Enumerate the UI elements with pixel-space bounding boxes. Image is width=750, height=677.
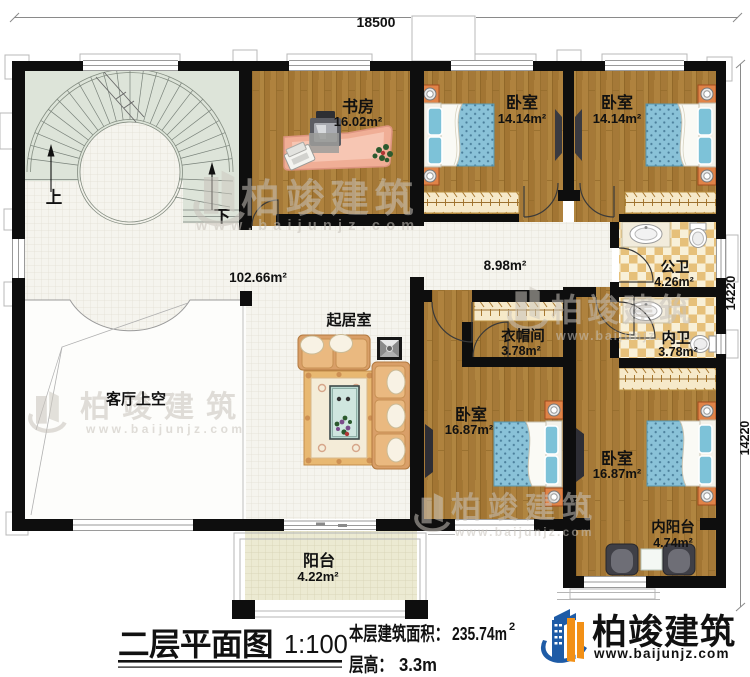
svg-text:客厅上空: 客厅上空 [105, 390, 166, 408]
svg-text:卧室: 卧室 [506, 93, 538, 112]
svg-text:www.baijunjz.com: www.baijunjz.com [195, 218, 420, 234]
svg-text:4.22m²: 4.22m² [297, 569, 339, 584]
svg-text:公卫: 公卫 [661, 259, 690, 276]
svg-text:16.87m²: 16.87m² [593, 466, 642, 481]
svg-text:卧室: 卧室 [601, 93, 633, 112]
svg-text:102.66m²: 102.66m² [229, 270, 287, 285]
svg-text:层高：: 层高： [349, 653, 393, 676]
svg-text:18500: 18500 [357, 14, 396, 30]
svg-text:2: 2 [509, 621, 515, 633]
svg-text:3.78m²: 3.78m² [658, 345, 698, 359]
svg-text:16.02m²: 16.02m² [334, 114, 383, 129]
svg-text:柏竣建筑: 柏竣建筑 [551, 292, 695, 328]
svg-text:柏竣建筑: 柏竣建筑 [451, 491, 599, 525]
svg-text:起居室: 起居室 [325, 311, 371, 329]
svg-text:本层建筑面积：: 本层建筑面积： [349, 622, 449, 645]
svg-text:3.3m: 3.3m [399, 655, 437, 675]
svg-text:二层平面图: 二层平面图 [118, 626, 273, 662]
svg-text:www.baijunjz.com: www.baijunjz.com [593, 646, 730, 661]
svg-text:235.74m: 235.74m [452, 624, 507, 644]
svg-text:内阳台: 内阳台 [651, 518, 695, 536]
svg-text:14.14m²: 14.14m² [593, 111, 642, 126]
svg-text:14.14m²: 14.14m² [498, 111, 547, 126]
svg-text:阳台: 阳台 [303, 551, 335, 570]
svg-text:16.87m²: 16.87m² [445, 422, 494, 437]
svg-text:柏竣建筑: 柏竣建筑 [241, 178, 419, 221]
svg-text:14220: 14220 [738, 421, 750, 456]
svg-text:4.74m²: 4.74m² [653, 536, 693, 550]
svg-text:上: 上 [46, 188, 63, 207]
svg-text:www.baijunjz.com: www.baijunjz.com [454, 525, 594, 539]
svg-text:衣帽间: 衣帽间 [501, 327, 545, 345]
svg-text:14220: 14220 [724, 276, 738, 311]
svg-text:www.baijunjz.com: www.baijunjz.com [85, 422, 246, 436]
svg-text:1:100: 1:100 [284, 631, 348, 659]
svg-text:3.78m²: 3.78m² [501, 344, 541, 358]
svg-text:8.98m²: 8.98m² [484, 258, 527, 273]
svg-text:4.26m²: 4.26m² [654, 275, 694, 289]
